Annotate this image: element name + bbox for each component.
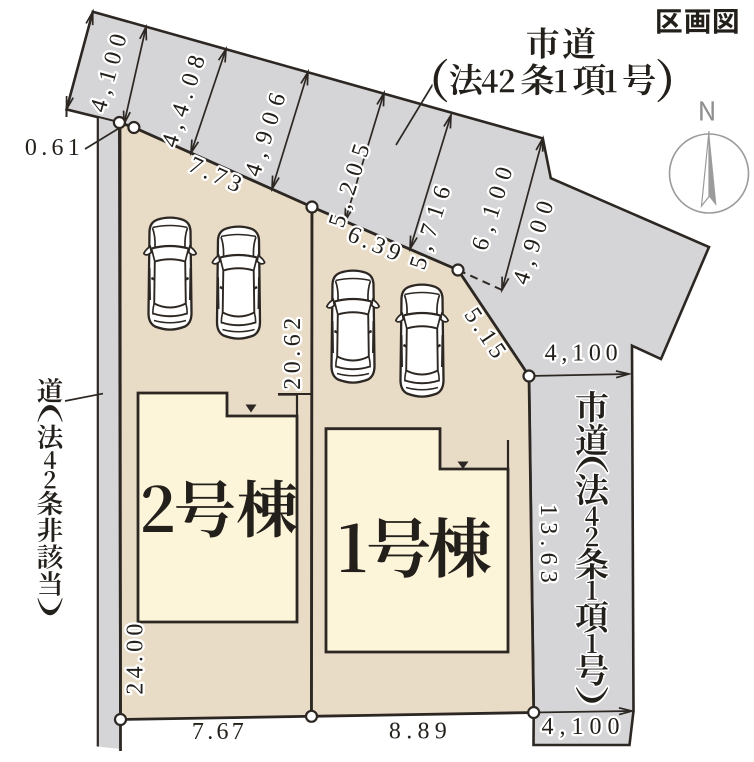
svg-text:13.63: 13.63 <box>535 504 561 589</box>
svg-text:20.62: 20.62 <box>280 313 306 390</box>
svg-text:0.61: 0.61 <box>25 135 84 161</box>
svg-text:4,100: 4,100 <box>542 714 626 740</box>
svg-text:24.00: 24.00 <box>123 619 149 694</box>
svg-text:4,100: 4,100 <box>545 341 623 367</box>
svg-text:8.89: 8.89 <box>389 719 452 745</box>
svg-text:7.67: 7.67 <box>192 719 247 745</box>
